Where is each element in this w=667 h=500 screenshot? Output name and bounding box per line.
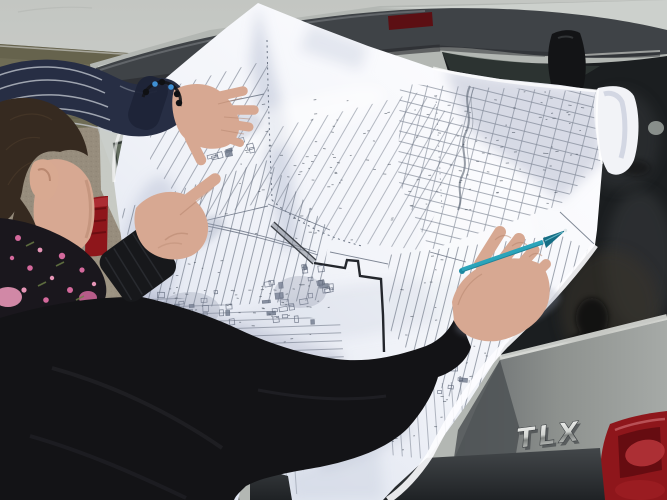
photo-scene: TLX TLX <box>0 0 667 500</box>
window-hinge-knob <box>648 121 664 135</box>
rear-taillight <box>600 411 667 500</box>
pen-tip <box>564 229 567 232</box>
